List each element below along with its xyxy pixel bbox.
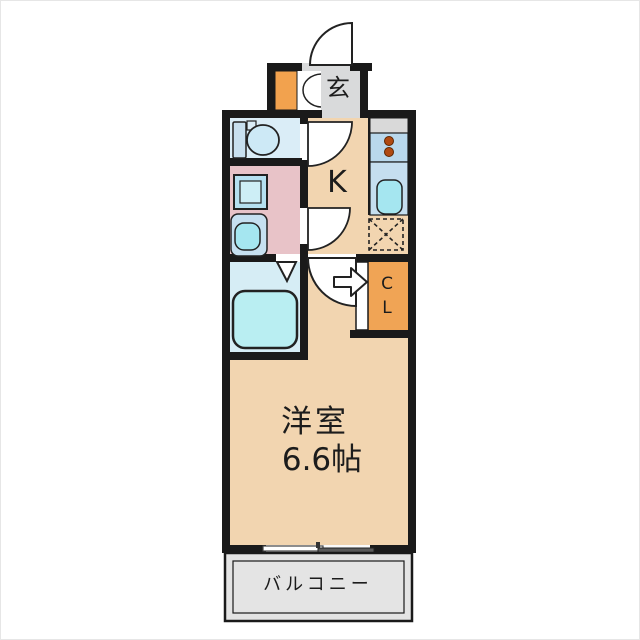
stove-burner-icon: [385, 148, 394, 157]
wall-entrance-right: [360, 63, 368, 118]
wall-left-outer: [222, 110, 230, 553]
washbasin-icon: [235, 223, 260, 250]
stove-burner-icon: [385, 137, 394, 146]
wall-bathroom-bottom: [222, 352, 308, 360]
washing-machine-drum: [240, 181, 261, 203]
room-size-label: 6.6帖: [282, 442, 362, 478]
floorplan-svg: 玄 K C L 洋室 6.6帖 バルコニー: [0, 0, 640, 640]
wall-bathroom-right: [300, 262, 308, 360]
wall-mid-vertical-2: [300, 160, 308, 208]
bathtub-icon: [233, 291, 297, 348]
wall-entrance-left: [267, 63, 275, 118]
toilet-tank: [233, 122, 246, 158]
balcony-label: バルコニー: [263, 574, 373, 595]
closet-label-line2: L: [382, 298, 392, 318]
room-name-label: 洋室: [281, 404, 349, 440]
shoe-cabinet: [275, 71, 297, 110]
counter-edge-line: [368, 118, 370, 215]
closet-floor: [368, 262, 408, 330]
kitchen-sink-icon: [377, 180, 402, 214]
closet-label-line1: C: [381, 274, 393, 294]
floorplan-image: 玄 K C L 洋室 6.6帖 バルコニー: [0, 0, 640, 640]
genkan-label: 玄: [326, 74, 350, 102]
wall-top-kitchen: [360, 110, 416, 118]
wall-middle-right: [356, 254, 416, 262]
wall-mid-vertical-1: [300, 118, 308, 124]
wall-closet-bottom: [350, 330, 416, 338]
kitchen-label: K: [327, 165, 348, 200]
wall-middle-stub: [300, 254, 308, 262]
wall-toilet-divider: [226, 158, 302, 166]
range-hood-icon: [370, 118, 408, 133]
toilet-icon: [247, 125, 279, 155]
wall-top-left-block: [222, 110, 308, 118]
closet-door: [356, 262, 368, 330]
entrance-door-swing-icon: [310, 23, 352, 65]
